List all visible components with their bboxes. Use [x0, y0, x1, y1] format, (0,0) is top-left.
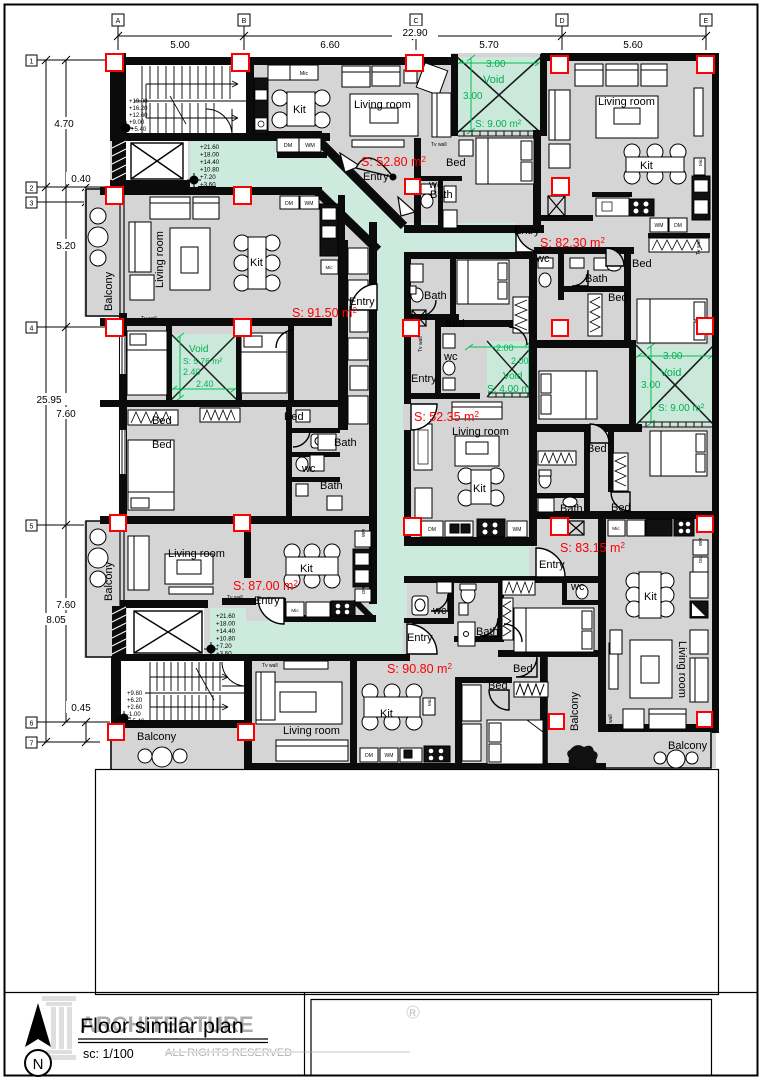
svg-text:Bed: Bed [611, 502, 631, 514]
svg-text:S: 87.00 m2: S: 87.00 m2 [233, 579, 298, 593]
svg-text:5.20: 5.20 [56, 241, 76, 252]
svg-text:6.60: 6.60 [320, 40, 340, 51]
svg-text:Mic: Mic [291, 608, 299, 614]
svg-text:0.40: 0.40 [71, 174, 91, 185]
svg-text:3.00: 3.00 [486, 59, 506, 70]
svg-text:+19.80: +19.80 [129, 99, 148, 105]
svg-text:Bed: Bed [488, 680, 508, 692]
svg-text:+21.60: +21.60 [200, 144, 220, 151]
svg-text:Living room: Living room [154, 231, 166, 288]
svg-text:5: 5 [30, 524, 34, 531]
svg-text:+5.40: +5.40 [131, 127, 147, 133]
svg-text:8.05: 8.05 [46, 615, 66, 626]
svg-text:Bath: Bath [334, 437, 357, 449]
svg-text:Mic: Mic [612, 526, 620, 532]
svg-text:Kit: Kit [300, 563, 313, 575]
svg-text:Entry: Entry [539, 559, 565, 571]
svg-text:wc: wc [443, 351, 458, 363]
svg-text:Kit: Kit [250, 257, 263, 269]
svg-text:DM: DM [285, 201, 293, 207]
svg-text:Balcony: Balcony [569, 691, 581, 731]
svg-text:Bed: Bed [152, 415, 172, 427]
svg-text:+16.20: +16.20 [129, 106, 148, 112]
svg-text:Tv wall: Tv wall [418, 336, 424, 352]
svg-text:Mic: Mic [427, 698, 432, 706]
svg-text:+6.20: +6.20 [127, 698, 143, 704]
svg-text:4: 4 [30, 326, 34, 333]
svg-text:Living room: Living room [676, 641, 688, 698]
svg-text:5.60: 5.60 [623, 40, 643, 51]
svg-text:2.40: 2.40 [183, 367, 201, 377]
svg-text:+12.60: +12.60 [129, 113, 148, 119]
svg-text:Void: Void [503, 371, 522, 382]
svg-text:S: 82.30 m2: S: 82.30 m2 [540, 236, 605, 250]
svg-text:Void: Void [483, 74, 504, 86]
svg-text:5.70: 5.70 [479, 40, 499, 51]
svg-text:wc: wc [570, 581, 585, 593]
svg-text:2.00: 2.00 [511, 356, 529, 366]
svg-text:+14.40: +14.40 [200, 159, 220, 166]
svg-text:-1.00: -1.00 [127, 712, 141, 718]
svg-text:0.45: 0.45 [71, 703, 91, 714]
svg-text:S: 90.80 m2: S: 90.80 m2 [387, 662, 452, 676]
svg-text:1: 1 [30, 59, 34, 66]
svg-text:Kit: Kit [640, 160, 653, 172]
svg-text:C: C [413, 18, 418, 25]
svg-text:S: 83.15 m2: S: 83.15 m2 [560, 541, 625, 555]
svg-text:Living room: Living room [283, 725, 340, 737]
svg-text:S: 9.00 m²: S: 9.00 m² [475, 119, 522, 130]
svg-text:Balcony: Balcony [103, 561, 115, 601]
svg-text:WM: WM [513, 527, 522, 533]
svg-text:Living room: Living room [168, 548, 225, 560]
svg-text:4.70: 4.70 [54, 119, 74, 130]
svg-text:wc: wc [535, 253, 550, 265]
svg-text:Floor similar plan: Floor similar plan [80, 1014, 244, 1038]
svg-text:S: 9.00 m²: S: 9.00 m² [658, 403, 705, 414]
svg-text:Bath: Bath [424, 290, 447, 302]
svg-text:DM: DM [674, 223, 682, 229]
svg-text:Bath: Bath [320, 480, 343, 492]
svg-text:2.00: 2.00 [496, 343, 514, 353]
svg-text:S: 91.50 m2: S: 91.50 m2 [292, 306, 357, 320]
svg-text:Kit: Kit [293, 104, 306, 116]
svg-text:DM: DM [428, 527, 436, 533]
svg-text:N: N [33, 1056, 44, 1073]
svg-text:+14.40: +14.40 [216, 628, 236, 635]
svg-text:Bed: Bed [152, 439, 172, 451]
svg-text:A: A [116, 18, 121, 25]
svg-text:Living room: Living room [598, 96, 655, 108]
svg-text:Mic: Mic [698, 158, 703, 166]
svg-text:WM: WM [385, 753, 394, 759]
svg-text:Kit: Kit [380, 708, 393, 720]
svg-text:Entry: Entry [254, 595, 280, 607]
svg-text:+18.00: +18.00 [200, 152, 220, 159]
svg-text:DM: DM [284, 143, 293, 149]
svg-text:E: E [704, 18, 709, 25]
svg-text:Bed: Bed [632, 258, 652, 270]
svg-text:WM: WM [305, 143, 315, 149]
svg-text:sc: 1/100: sc: 1/100 [83, 1047, 134, 1061]
svg-text:+9.80: +9.80 [127, 691, 143, 697]
svg-text:Bed: Bed [513, 663, 533, 675]
svg-text:2: 2 [30, 186, 34, 193]
svg-text:Bed: Bed [587, 443, 607, 455]
svg-text:Kit: Kit [473, 483, 486, 495]
svg-text:7: 7 [30, 741, 34, 748]
svg-text:Entry: Entry [363, 171, 389, 183]
svg-text:WM: WM [698, 538, 703, 546]
svg-text:Tv wall: Tv wall [262, 663, 278, 669]
svg-text:Living room: Living room [354, 99, 411, 111]
svg-text:+7.20: +7.20 [216, 643, 232, 650]
svg-text:Tv wall: Tv wall [141, 316, 157, 322]
svg-text:Bed: Bed [446, 157, 466, 169]
svg-text:6: 6 [30, 721, 34, 728]
svg-text:wc: wc [301, 463, 316, 475]
svg-text:Void: Void [189, 344, 208, 355]
svg-text:+5.40: +5.40 [129, 719, 145, 725]
svg-text:2.40: 2.40 [196, 379, 214, 389]
svg-text:7.60: 7.60 [56, 600, 76, 611]
svg-text:wc: wc [432, 605, 447, 617]
svg-text:Balcony: Balcony [137, 731, 177, 743]
svg-text:Bath: Bath [585, 273, 608, 285]
svg-text:Living room: Living room [452, 426, 509, 438]
svg-text:Tv wall: Tv wall [608, 714, 614, 730]
svg-text:wc: wc [428, 179, 443, 191]
svg-text:Balcony: Balcony [103, 271, 115, 311]
svg-text:+21.60: +21.60 [216, 613, 236, 620]
svg-text:22.90: 22.90 [402, 28, 427, 39]
svg-text:D: D [559, 18, 564, 25]
svg-text:R: R [410, 1008, 417, 1018]
svg-text:+10.80: +10.80 [200, 167, 220, 174]
svg-text:Mic: Mic [300, 71, 309, 77]
svg-text:Tv wall: Tv wall [227, 595, 243, 601]
svg-text:Bath: Bath [476, 626, 499, 638]
svg-text:Void: Void [660, 367, 681, 379]
svg-text:Bed: Bed [284, 411, 304, 423]
svg-text:+10.80: +10.80 [216, 636, 236, 643]
svg-text:3.00: 3.00 [641, 380, 661, 391]
svg-text:Bed: Bed [608, 292, 628, 304]
svg-text:Bath: Bath [560, 503, 583, 515]
svg-text:Entry: Entry [407, 632, 433, 644]
svg-text:Balcony: Balcony [668, 740, 708, 752]
svg-text:+7.20: +7.20 [200, 174, 216, 181]
svg-text:Tv wall: Tv wall [431, 142, 447, 148]
svg-text:5.00: 5.00 [170, 40, 190, 51]
svg-text:Entry: Entry [349, 296, 375, 308]
svg-text:+9.00: +9.00 [129, 120, 145, 126]
svg-text:Tv wall: Tv wall [696, 239, 702, 255]
svg-text:S: 52.35 m2: S: 52.35 m2 [414, 410, 479, 424]
svg-text:Bed: Bed [445, 318, 465, 330]
svg-text:Mic: Mic [326, 265, 334, 270]
svg-text:DM: DM [361, 587, 366, 594]
svg-text:WM: WM [361, 529, 366, 537]
svg-text:Kit: Kit [644, 591, 657, 603]
svg-text:DM: DM [698, 556, 703, 563]
svg-text:S: 5.76 m²: S: 5.76 m² [183, 356, 222, 366]
svg-text:+18.00: +18.00 [216, 621, 236, 628]
svg-text:DM: DM [365, 753, 373, 759]
svg-text:25.95: 25.95 [36, 395, 61, 406]
svg-text:WM: WM [305, 201, 314, 207]
svg-text:3.00: 3.00 [663, 351, 683, 362]
svg-text:S: 52.80 m2: S: 52.80 m2 [361, 155, 426, 169]
svg-text:Entry: Entry [411, 373, 437, 385]
svg-text:3.00: 3.00 [463, 91, 483, 102]
svg-text:B: B [242, 18, 247, 25]
svg-text:3: 3 [30, 201, 34, 208]
svg-text:7.60: 7.60 [56, 409, 76, 420]
svg-text:Entry: Entry [514, 225, 540, 237]
svg-text:WM: WM [655, 223, 664, 229]
svg-text:+2.60: +2.60 [127, 705, 143, 711]
